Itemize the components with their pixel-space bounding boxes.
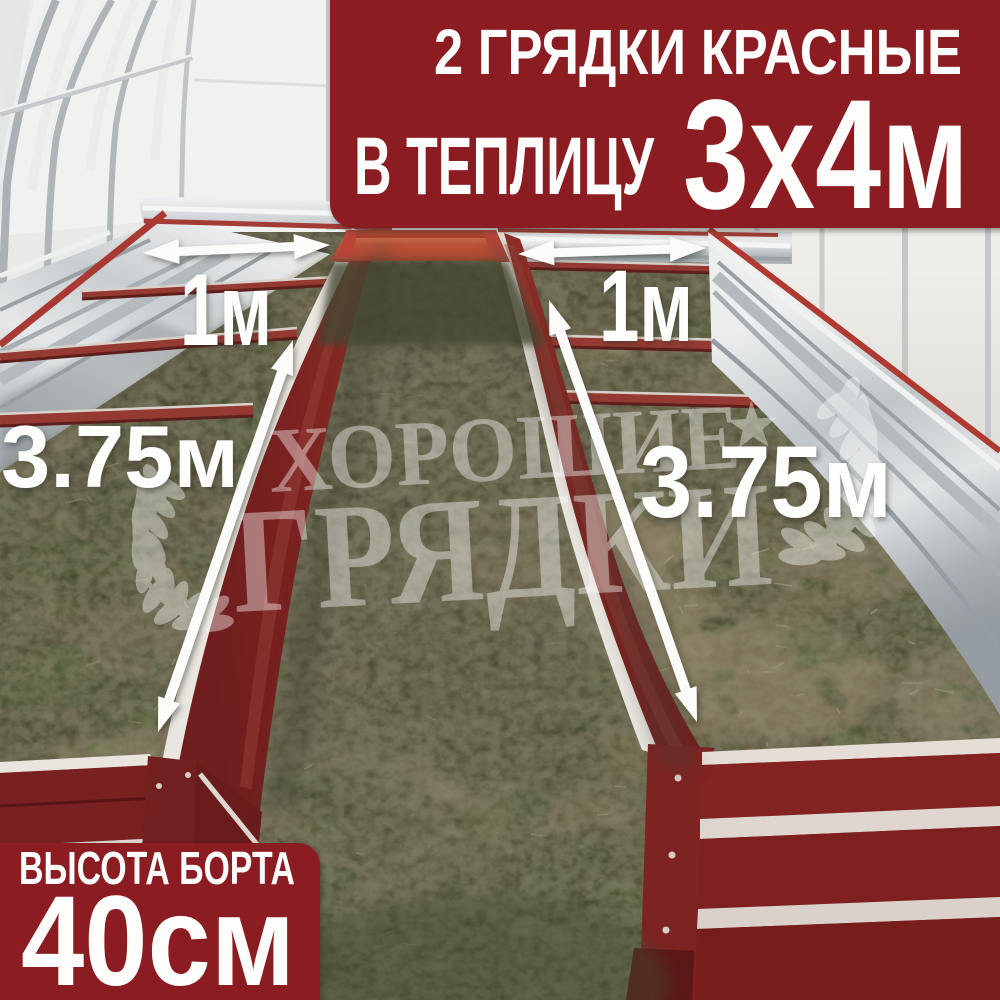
svg-text:3.75м: 3.75м	[1, 407, 239, 506]
svg-text:1м: 1м	[180, 253, 272, 367]
svg-text:40см: 40см	[21, 870, 295, 1000]
svg-text:3х4м: 3х4м	[683, 68, 969, 242]
svg-text:3.75м: 3.75м	[640, 425, 892, 539]
svg-text:В ТЕПЛИЦУ: В ТЕПЛИЦУ	[354, 121, 655, 212]
svg-text:1м: 1м	[599, 249, 693, 363]
